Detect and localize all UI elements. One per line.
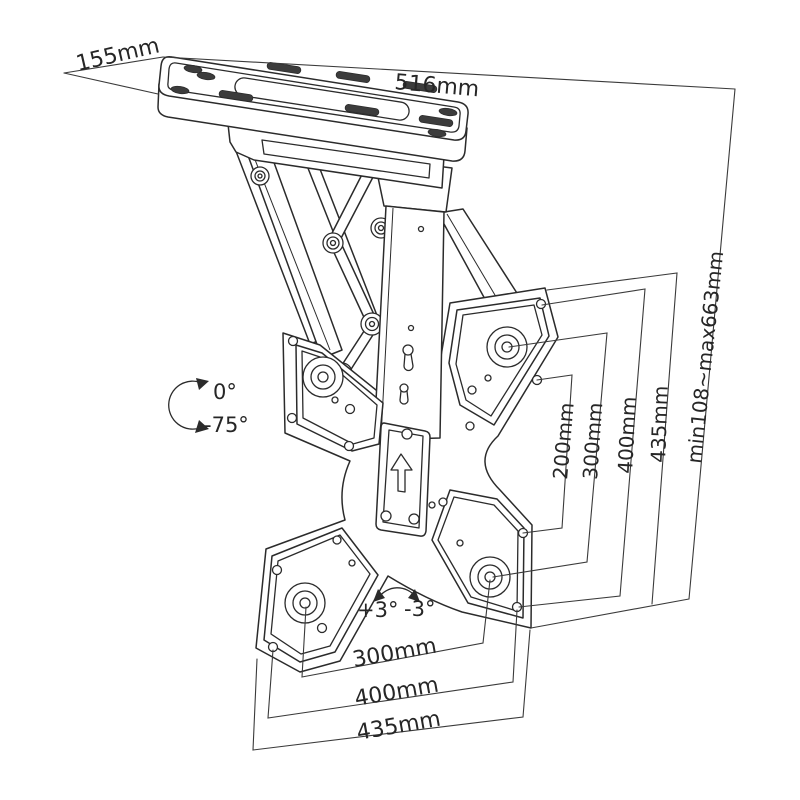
dim-label-height-range: min108~max663mm [682,250,728,465]
angle-label-swivel-right: -3° [404,597,435,621]
ceiling-mount-drawing: 155mm 516mm min108~max663mm 200mm 300mm … [0,0,800,800]
center-plate [376,423,430,536]
dim-label-plate-435-h: 435mm [355,707,443,746]
vesa-screw [487,327,527,367]
dim-label-vesa-300-h: 300mm [351,634,439,673]
angle-label-fold-down: -75° [204,413,249,437]
dim-label-vesa-300-v: 300mm [578,402,607,481]
dim-label-vesa-200: 200mm [548,401,579,480]
dim-label-vesa-400-v: 400mm [613,396,641,474]
vesa-screw [470,557,510,597]
angle-label-fold-up: 0° [213,380,237,404]
vesa-screw [303,357,343,397]
dim-label-plate-depth: 155mm [74,33,162,76]
lift-column [374,206,444,440]
fold-angle-indicator [169,378,209,433]
diagram-canvas: 155mm 516mm min108~max663mm 200mm 300mm … [0,0,800,800]
dim-label-plate-435-v: 435mm [646,385,673,463]
dim-label-vesa-400-h: 400mm [353,673,441,712]
angle-label-swivel-left: +3° [357,598,398,622]
